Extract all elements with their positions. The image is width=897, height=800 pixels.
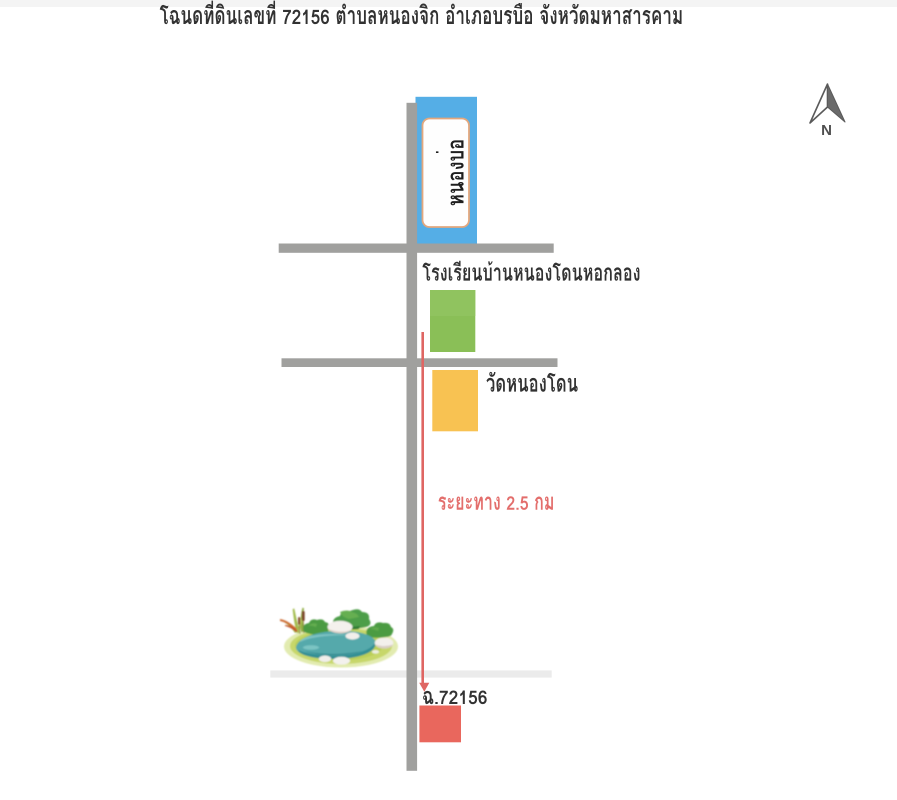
svg-text:N: N [821, 122, 832, 139]
